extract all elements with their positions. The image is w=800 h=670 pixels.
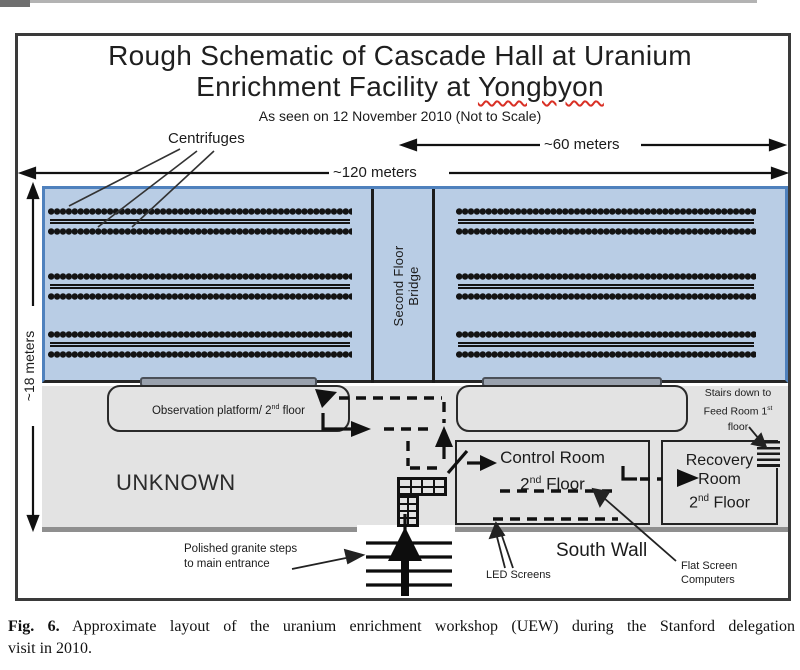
dimension-60m-label: ~60 meters [544, 136, 619, 153]
diagram-title: Rough Schematic of Cascade Hall at Urani… [15, 40, 785, 102]
centrifuge-row-group [48, 272, 352, 301]
centrifuge-row-group [456, 272, 756, 301]
caption-line2: visit in 2010. [8, 638, 795, 660]
centrifuge-pipe-line [458, 342, 754, 347]
spellcheck-underlined-word: Yongbyon [478, 71, 604, 102]
centrifuge-row-group [456, 207, 756, 236]
title-line1: Rough Schematic of Cascade Hall at Urani… [15, 40, 785, 71]
centrifuge-pipe-line [50, 284, 350, 289]
south-wall-label: South Wall [556, 540, 647, 562]
diagram-subtitle: As seen on 12 November 2010 (Not to Scal… [15, 108, 785, 124]
control-room-floor: 2nd Floor [457, 469, 648, 496]
centrifuge-pipe-line [50, 219, 350, 224]
console-icon-vertical [397, 495, 419, 527]
flat-screen-computers-label: Flat ScreenComputers [681, 560, 737, 587]
bridge-wall-right [432, 189, 435, 383]
centrifuge-row-group [456, 330, 756, 359]
centrifuge-dotted-row [48, 227, 352, 236]
recovery-room-floor: 2nd Floor [663, 489, 776, 512]
centrifuge-dotted-row [456, 227, 756, 236]
dimension-120m-label: ~120 meters [333, 164, 417, 181]
centrifuge-dotted-row [48, 207, 352, 216]
granite-steps-label: Polished granite stepsto main entrance [184, 542, 297, 572]
control-room-box: Control Room 2nd Floor [455, 440, 650, 525]
stairs-icon [757, 441, 780, 468]
caption-line1: Fig. 6. Approximate layout of the uraniu… [8, 616, 795, 638]
centrifuge-dotted-row [456, 272, 756, 281]
observation-platform-outline-right [456, 385, 688, 432]
figure-page: Rough Schematic of Cascade Hall at Urani… [0, 0, 800, 670]
led-screens-label: LED Screens [486, 569, 551, 581]
centrifuge-dotted-row [48, 272, 352, 281]
bridge-wall-left [371, 189, 374, 383]
centrifuges-label: Centrifuges [168, 130, 245, 147]
observation-platform-label: Observation platform/ 2nd floor [152, 401, 305, 417]
console-icon-horizontal [397, 477, 447, 496]
centrifuge-dotted-row [456, 292, 756, 301]
recovery-room-label-line2: Room [663, 470, 776, 489]
centrifuge-row-group [48, 330, 352, 359]
centrifuge-pipe-line [50, 342, 350, 347]
unknown-area-label: UNKNOWN [116, 470, 236, 496]
title-line2: Enrichment Facility at Yongbyon [15, 71, 785, 102]
stairs-label: Stairs down to Feed Room 1st floor [692, 386, 784, 435]
centrifuge-dotted-row [456, 207, 756, 216]
scan-artifact-top-mark [0, 0, 30, 7]
south-wall-segment-right [455, 527, 788, 532]
centrifuge-dotted-row [48, 330, 352, 339]
south-wall-segment-left [42, 527, 357, 532]
control-room-label: Control Room [457, 447, 648, 469]
second-floor-bridge-label: Second Floor Bridge [391, 231, 413, 341]
centrifuge-pipe-line [458, 219, 754, 224]
figure-caption: Fig. 6. Approximate layout of the uraniu… [8, 616, 795, 660]
dimension-18m-label: ~18 meters [21, 310, 43, 422]
centrifuge-pipe-line [458, 284, 754, 289]
centrifuge-dotted-row [48, 350, 352, 359]
observation-platform-outline-left: Observation platform/ 2nd floor [107, 385, 350, 432]
centrifuge-dotted-row [456, 350, 756, 359]
centrifuge-dotted-row [456, 330, 756, 339]
scan-artifact-top-strip [0, 0, 757, 3]
centrifuge-dotted-row [48, 292, 352, 301]
centrifuge-row-group [48, 207, 352, 236]
